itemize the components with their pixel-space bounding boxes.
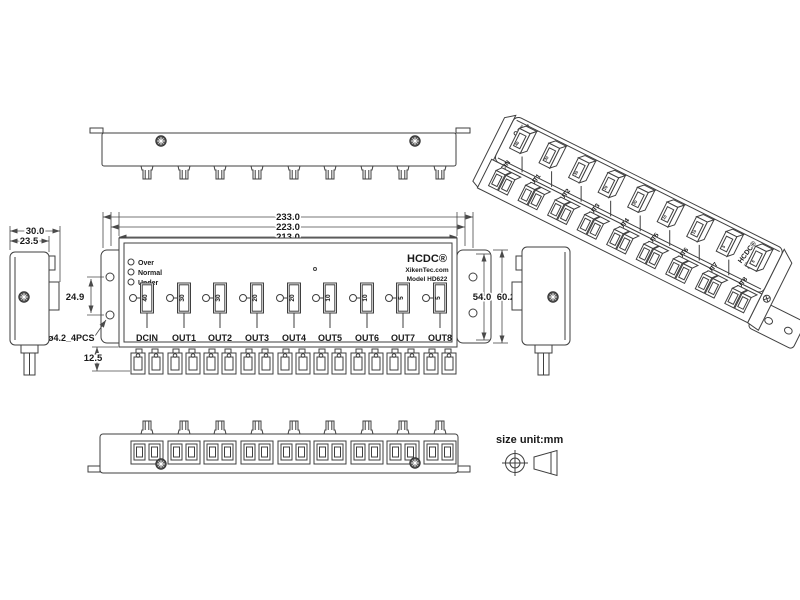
dim-connector-height: 12.5 — [84, 353, 103, 364]
led-over-label: Over — [138, 260, 154, 267]
svg-text:OUT8: OUT8 — [428, 333, 452, 343]
svg-text:OUT7: OUT7 — [391, 333, 415, 343]
left-side-view: 30.0 23.5 — [10, 226, 60, 375]
bottom-view — [88, 421, 470, 473]
svg-text:OUT1: OUT1 — [172, 333, 196, 343]
led-normal-label: Normal — [138, 270, 162, 277]
brand-website: XikenTec.com — [405, 267, 448, 274]
right-side-view — [512, 247, 570, 375]
side-body — [522, 247, 570, 345]
screw-icon — [156, 136, 166, 146]
projection-cone-icon — [534, 451, 557, 476]
bottom-terminal-pairs — [131, 441, 456, 464]
side-body — [10, 252, 49, 345]
svg-text:OUT4: OUT4 — [282, 333, 306, 343]
connector-height-dimension: 12.5 — [84, 347, 130, 371]
svg-text:30: 30 — [179, 294, 186, 302]
screw-icon — [19, 292, 29, 302]
screw-icon — [410, 458, 420, 468]
svg-text:5: 5 — [435, 296, 442, 300]
svg-text:20: 20 — [252, 294, 259, 302]
projection-symbol — [502, 450, 557, 476]
size-unit-label: size unit:mm — [496, 434, 563, 446]
dim-flange-hole-span: 54.0 — [473, 292, 492, 303]
mount-tab-right — [456, 128, 470, 133]
dim-side-body-depth: 23.5 — [20, 236, 39, 247]
drawing-page: 233.0 223.0 213.0 Over Normal Under HCDC… — [0, 0, 800, 600]
front-view: Over Normal Under HCDC® XikenTec.com Mod… — [101, 238, 491, 374]
svg-text:OUT2: OUT2 — [208, 333, 232, 343]
terminal-connector — [131, 349, 163, 374]
svg-text:10: 10 — [325, 294, 332, 302]
svg-text:20: 20 — [289, 294, 296, 302]
mount-tab-left — [88, 466, 100, 472]
bottom-connectors — [141, 421, 446, 434]
technical-drawing: 233.0 223.0 213.0 Over Normal Under HCDC… — [0, 0, 800, 600]
isometric-view: Over Normal Under HCDC® XikenTec.com Mod… — [469, 111, 800, 349]
mount-tab-left — [90, 128, 103, 133]
size-unit-note: size unit:mm — [496, 434, 563, 446]
port-label: DCIN — [136, 333, 158, 343]
screw-icon — [156, 459, 166, 469]
brand-logo: HCDC® — [407, 253, 447, 265]
svg-text:5: 5 — [398, 296, 405, 300]
mount-tab-right — [458, 466, 470, 472]
top-connectors — [141, 166, 446, 179]
brand-model: Model HD622 — [407, 276, 448, 283]
screw-icon — [548, 292, 558, 302]
brand-block: HCDC® XikenTec.com Model HD622 — [405, 253, 448, 283]
svg-text:OUT3: OUT3 — [245, 333, 269, 343]
top-body — [102, 133, 456, 166]
svg-text:OUT5: OUT5 — [318, 333, 342, 343]
fuse-rating: 40 — [142, 294, 149, 302]
dim-mount-hole-pitch: 24.9 — [66, 292, 85, 303]
svg-text:OUT6: OUT6 — [355, 333, 379, 343]
screw-icon — [410, 136, 420, 146]
dim-mount-hole-note: ø4.2_4PCS — [48, 333, 95, 343]
svg-text:10: 10 — [362, 294, 369, 302]
top-view — [90, 128, 470, 179]
svg-text:30: 30 — [215, 294, 222, 302]
